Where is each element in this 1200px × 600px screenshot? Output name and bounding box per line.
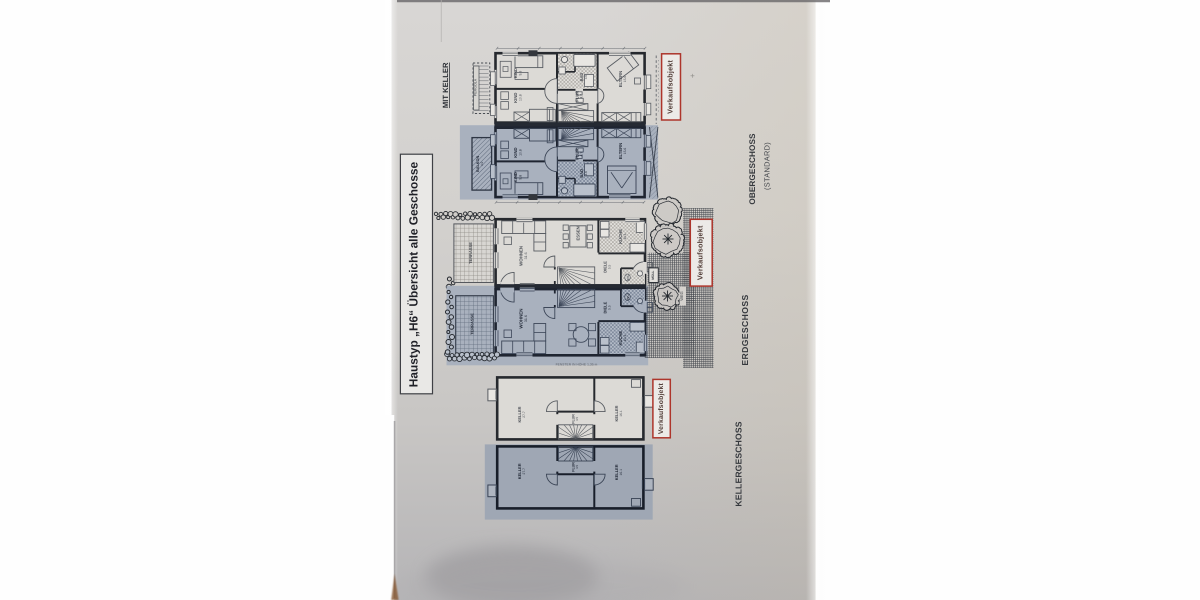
svg-text:Verkaufsobjekt: Verkaufsobjekt xyxy=(665,60,674,114)
svg-text:15.6: 15.6 xyxy=(623,148,627,155)
svg-text:4.6: 4.6 xyxy=(584,75,588,80)
svg-text:5.5: 5.5 xyxy=(607,264,611,269)
svg-text:KELLER: KELLER xyxy=(517,406,522,422)
svg-text:4.5: 4.5 xyxy=(575,464,579,469)
svg-text:4.7: 4.7 xyxy=(580,94,584,99)
svg-text:4.5: 4.5 xyxy=(575,416,579,421)
svg-text:WC: WC xyxy=(626,274,630,280)
svg-text:Verkaufsobjekt: Verkaufsobjekt xyxy=(696,225,705,280)
svg-text:MIT KELLER: MIT KELLER xyxy=(441,62,450,108)
svg-text:5.5: 5.5 xyxy=(607,305,611,310)
svg-text:31.6: 31.6 xyxy=(524,315,528,322)
svg-text:Haustyp „H6“ Übersicht alle Ge: Haustyp „H6“ Übersicht alle Geschosse xyxy=(407,161,421,387)
svg-text:4.6: 4.6 xyxy=(584,171,588,176)
svg-text:Verkaufsobjekt: Verkaufsobjekt xyxy=(658,382,665,434)
svg-text:KELLERGESCHOSS: KELLERGESCHOSS xyxy=(734,421,744,506)
svg-text:FENSTER IN HÖHE 1,35 m: FENSTER IN HÖHE 1,35 m xyxy=(556,363,598,367)
svg-text:15.6: 15.6 xyxy=(623,76,627,83)
svg-text:27.7: 27.7 xyxy=(522,468,526,475)
svg-text:(STANDARD): (STANDARD) xyxy=(763,142,772,190)
svg-text:10.8: 10.8 xyxy=(518,149,522,156)
svg-text:31.6: 31.6 xyxy=(524,252,528,259)
svg-text:10.1: 10.1 xyxy=(623,233,627,239)
svg-text:ESSEN: ESSEN xyxy=(575,226,580,240)
svg-text:TERRASSE: TERRASSE xyxy=(468,242,473,264)
svg-text:KELLER: KELLER xyxy=(614,405,619,421)
svg-text:9.8: 9.8 xyxy=(518,71,522,76)
svg-text:WOHNEN: WOHNEN xyxy=(518,246,523,266)
svg-text:MÜLL: MÜLL xyxy=(651,271,655,280)
svg-text:KELLER: KELLER xyxy=(517,463,522,479)
svg-text:WC: WC xyxy=(626,294,630,300)
svg-text:4.7: 4.7 xyxy=(580,152,584,157)
svg-text:PERGOLA: PERGOLA xyxy=(473,78,477,96)
svg-text:KELLER: KELLER xyxy=(614,464,619,480)
svg-text:9.8: 9.8 xyxy=(518,175,522,180)
svg-text:+: + xyxy=(690,72,695,81)
svg-text:16.1: 16.1 xyxy=(619,410,623,417)
svg-text:WOHNEN: WOHNEN xyxy=(518,309,523,329)
svg-text:10.1: 10.1 xyxy=(623,335,627,341)
svg-text:WEG: WEG xyxy=(679,291,684,301)
svg-text:ERDGESCHOSS: ERDGESCHOSS xyxy=(740,294,750,365)
svg-text:OBERGESCHOSS: OBERGESCHOSS xyxy=(748,133,757,205)
svg-text:4.9: 4.9 xyxy=(480,161,484,166)
svg-text:TERRASSE: TERRASSE xyxy=(470,313,475,335)
svg-text:27.7: 27.7 xyxy=(522,411,526,418)
svg-text:16.1: 16.1 xyxy=(619,469,623,476)
svg-text:10.8: 10.8 xyxy=(518,94,522,101)
